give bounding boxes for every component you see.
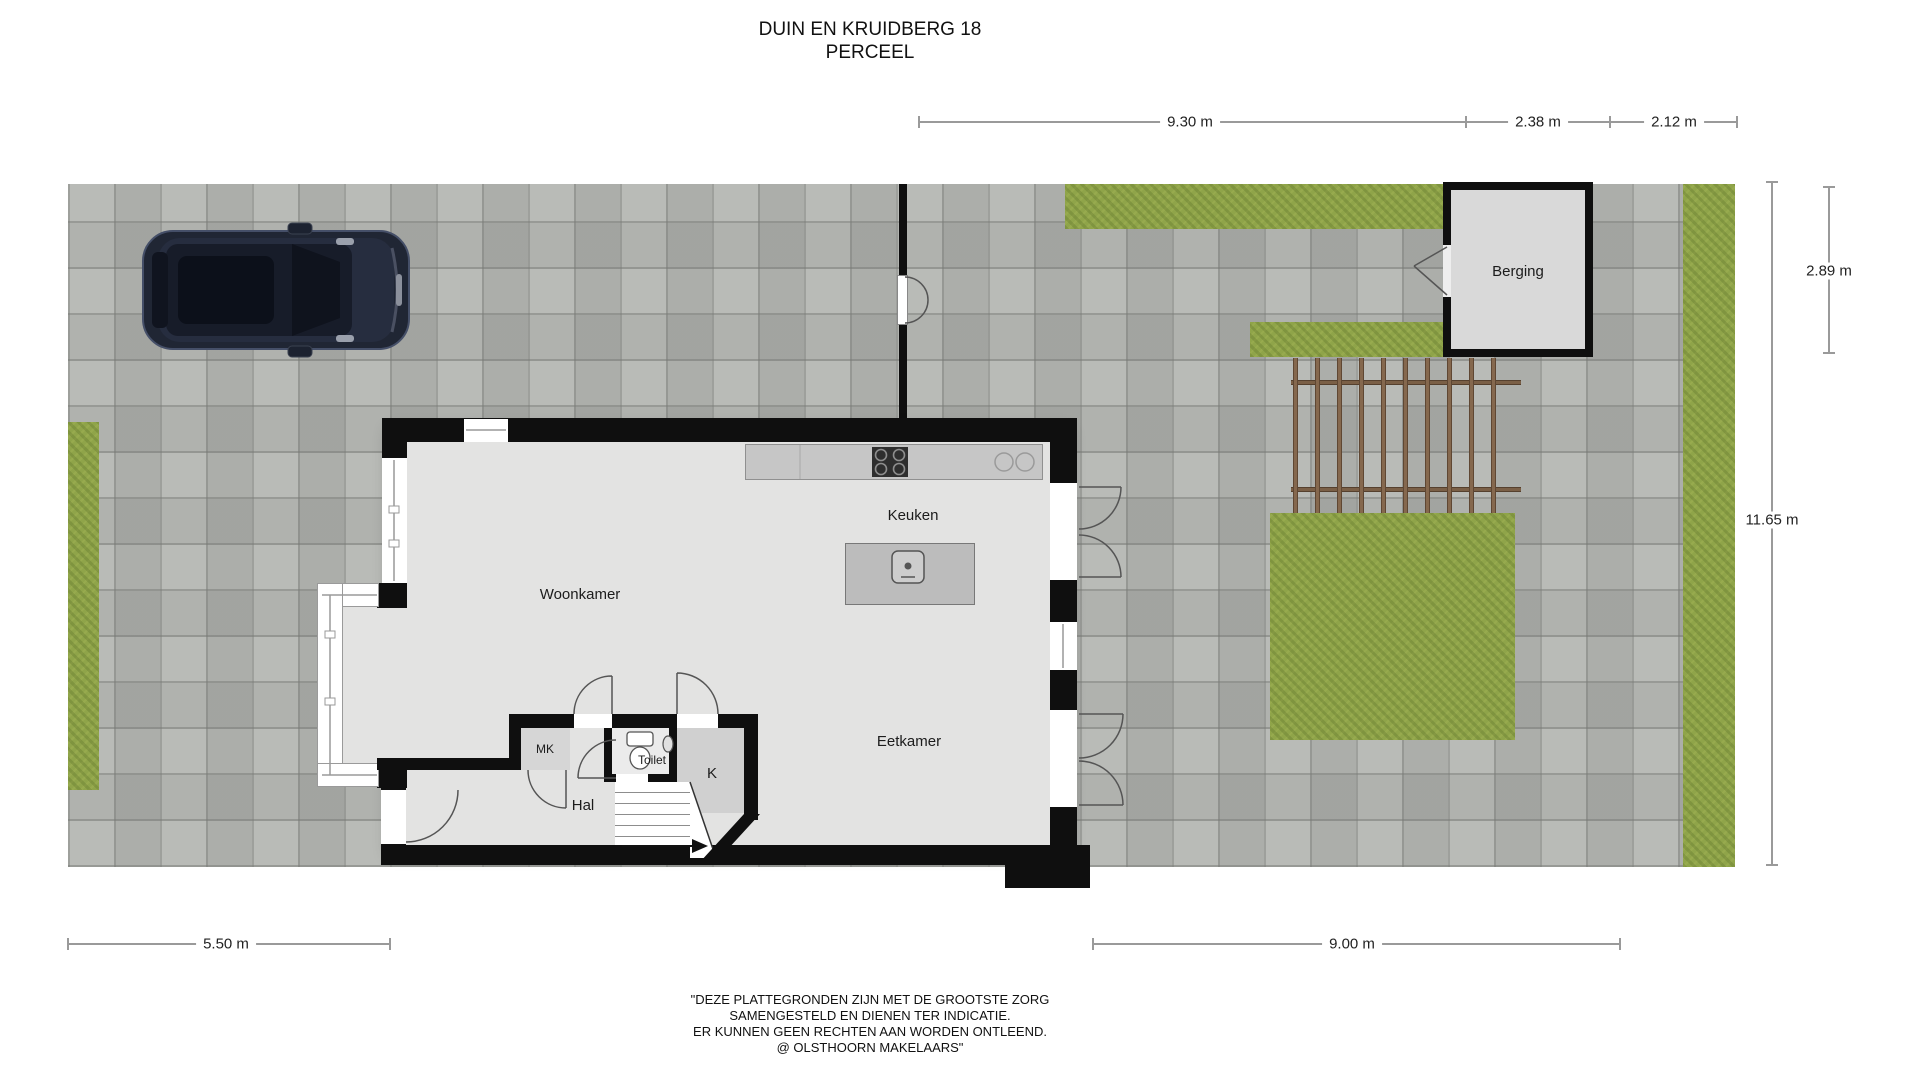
room-label-eetkamer: Eetkamer — [809, 733, 1009, 750]
dim-label-238: 2.38 m — [1508, 114, 1568, 131]
floorplan-canvas: DUIN EN KRUIDBERG 18 PERCEEL Berging — [0, 0, 1920, 1080]
island-tap — [905, 563, 912, 570]
dim-label-289: 2.89 m — [1799, 263, 1859, 280]
dim-tick — [1092, 938, 1094, 950]
dim-tick — [918, 116, 920, 128]
dim-tick — [1609, 116, 1611, 128]
dim-tick — [1766, 181, 1778, 183]
disclaimer-line1: "DEZE PLATTEGRONDEN ZIJN MET DE GROOTSTE… — [610, 992, 1130, 1008]
window-mullion — [325, 631, 335, 638]
lineart-overlay — [0, 0, 1920, 1080]
room-label-mk: MK — [520, 742, 570, 756]
toilet-cistern — [627, 732, 653, 746]
french-door-swing — [1079, 487, 1121, 529]
disclaimer-line3: ER KUNNEN GEEN RECHTEN AAN WORDEN ONTLEE… — [610, 1024, 1130, 1040]
room-label-hal: Hal — [533, 797, 633, 814]
dim-tick — [1823, 352, 1835, 354]
hall-door-swing-left — [574, 676, 612, 714]
dim-line-top — [919, 121, 1737, 123]
disclaimer: "DEZE PLATTEGRONDEN ZIJN MET DE GROOTSTE… — [610, 992, 1130, 1056]
stove-burners — [876, 450, 905, 475]
window-mullion — [325, 698, 335, 705]
dim-tick — [1766, 864, 1778, 866]
toilet-sink — [663, 736, 673, 752]
dim-tick — [1619, 938, 1621, 950]
dim-tick — [1465, 116, 1467, 128]
dim-tick — [1823, 186, 1835, 188]
dim-label-212: 2.12 m — [1644, 114, 1704, 131]
dim-tick — [1736, 116, 1738, 128]
dim-label-930: 9.30 m — [1160, 114, 1220, 131]
gate-swing-arc — [905, 277, 928, 323]
shed-door-leaf — [1414, 247, 1447, 295]
disclaimer-line2: SAMENGESTELD EN DIENEN TER INDICATIE. — [610, 1008, 1130, 1024]
french-door-swing — [1079, 714, 1123, 758]
french-door-swing — [1079, 761, 1123, 805]
room-label-woonkamer: Woonkamer — [480, 586, 680, 603]
window-mullion — [389, 540, 399, 547]
counter-sink — [995, 453, 1034, 471]
room-label-k: K — [687, 765, 737, 782]
room-label-keuken: Keuken — [813, 507, 1013, 524]
dim-tick — [389, 938, 391, 950]
bay-glass-lines — [322, 595, 377, 775]
window-mullion — [389, 506, 399, 513]
disclaimer-line4: @ OLSTHOORN MAKELAARS" — [610, 1040, 1130, 1056]
dim-tick — [67, 938, 69, 950]
hall-door-swing-right — [677, 673, 718, 714]
front-door-swing — [406, 790, 458, 842]
dim-label-550: 5.50 m — [196, 936, 256, 953]
dim-label-900: 9.00 m — [1322, 936, 1382, 953]
french-door-swing — [1079, 535, 1121, 577]
dim-label-1165: 11.65 m — [1738, 512, 1805, 529]
